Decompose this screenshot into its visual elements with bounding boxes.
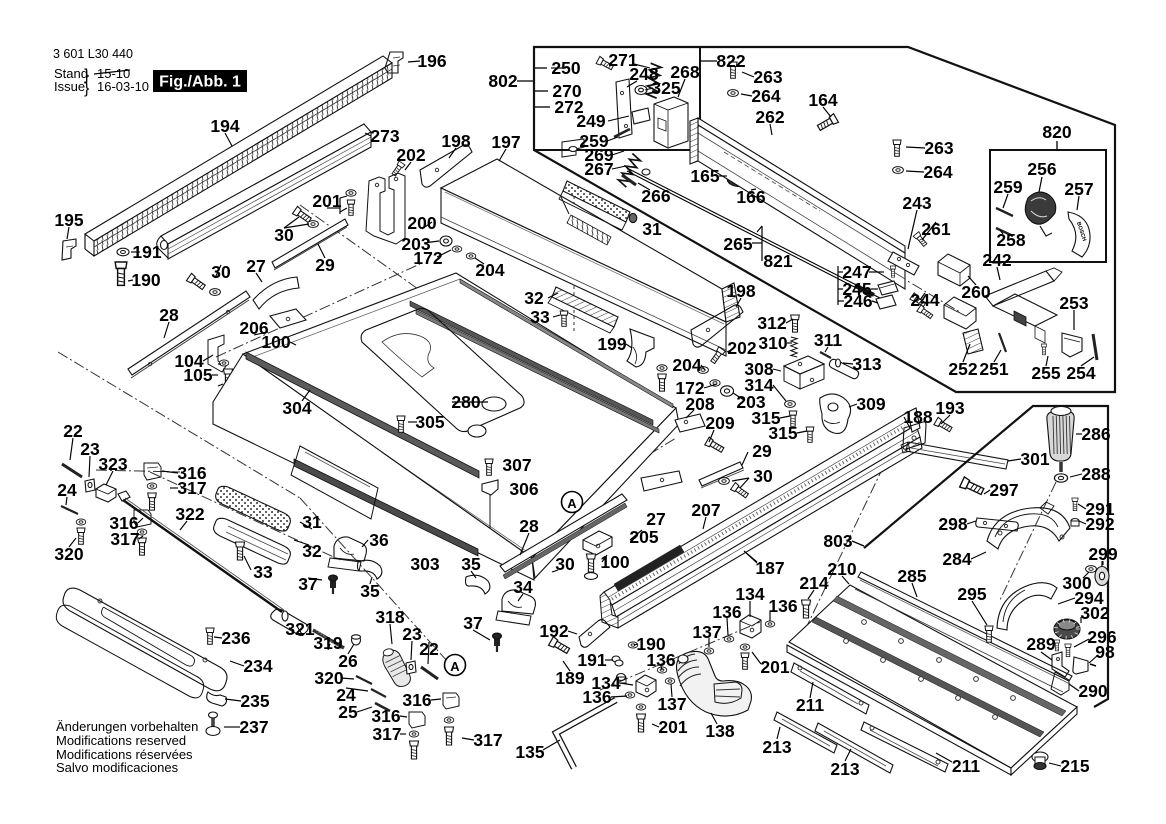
svg-text:105: 105 (183, 365, 212, 385)
svg-text:203: 203 (736, 392, 765, 412)
svg-text:189: 189 (555, 668, 584, 688)
svg-text:285: 285 (897, 566, 926, 586)
svg-text:A: A (567, 496, 577, 511)
svg-text:214: 214 (799, 573, 828, 593)
svg-text:32: 32 (302, 541, 322, 561)
svg-text:315: 315 (768, 423, 797, 443)
svg-text:298: 298 (938, 514, 967, 534)
svg-text:201: 201 (312, 191, 341, 211)
svg-text:254: 254 (1066, 363, 1095, 383)
svg-text:292: 292 (1085, 514, 1114, 534)
svg-text:205: 205 (629, 527, 658, 547)
svg-text:166: 166 (736, 187, 765, 207)
svg-text:201: 201 (658, 717, 687, 737)
svg-text:235: 235 (240, 691, 269, 711)
svg-text:29: 29 (752, 441, 772, 461)
svg-text:213: 213 (830, 759, 859, 779)
svg-text:250: 250 (551, 58, 580, 78)
svg-text:820: 820 (1042, 122, 1071, 142)
svg-text:Änderungen vorbehalten: Änderungen vorbehalten (56, 719, 198, 734)
svg-text:317: 317 (110, 529, 139, 549)
svg-text:191: 191 (132, 242, 161, 262)
svg-text:190: 190 (131, 270, 160, 290)
svg-text:265: 265 (723, 234, 752, 254)
svg-text:317: 317 (372, 724, 401, 744)
svg-text:33: 33 (253, 562, 273, 582)
svg-text:208: 208 (685, 394, 714, 414)
svg-text:187: 187 (755, 558, 784, 578)
svg-text:}: } (84, 80, 90, 97)
svg-text:164: 164 (808, 90, 837, 110)
svg-text:100: 100 (261, 332, 290, 352)
svg-text:319: 319 (313, 633, 342, 653)
svg-text:36: 36 (369, 530, 389, 550)
svg-text:37: 37 (463, 613, 482, 633)
svg-text:198: 198 (726, 281, 755, 301)
svg-text:313: 313 (852, 354, 881, 374)
svg-text:325: 325 (651, 78, 680, 98)
svg-text:35: 35 (360, 581, 380, 601)
svg-text:251: 251 (979, 359, 1008, 379)
svg-text:204: 204 (475, 260, 504, 280)
svg-text:301: 301 (1020, 449, 1049, 469)
svg-text:135: 135 (515, 742, 544, 762)
svg-text:28: 28 (159, 305, 179, 325)
svg-text:30: 30 (211, 262, 231, 282)
svg-text:320: 320 (54, 544, 83, 564)
svg-text:22: 22 (419, 639, 439, 659)
svg-text:172: 172 (413, 248, 442, 268)
svg-text:211: 211 (952, 756, 980, 776)
svg-text:316: 316 (371, 706, 400, 726)
svg-text:267: 267 (584, 159, 613, 179)
svg-text:249: 249 (576, 111, 605, 131)
svg-text:264: 264 (751, 86, 780, 106)
svg-text:37: 37 (298, 574, 317, 594)
svg-text:196: 196 (417, 51, 446, 71)
svg-text:305: 305 (415, 412, 444, 432)
svg-text:209: 209 (705, 413, 734, 433)
svg-text:204: 204 (672, 355, 701, 375)
svg-text:23: 23 (80, 439, 100, 459)
svg-text:136: 136 (646, 650, 675, 670)
svg-text:295: 295 (957, 584, 986, 604)
svg-text:321: 321 (285, 619, 314, 639)
svg-text:304: 304 (282, 398, 311, 418)
svg-text:98: 98 (1095, 642, 1115, 662)
svg-text:27: 27 (246, 256, 265, 276)
svg-text:802: 802 (488, 71, 517, 91)
svg-text:259: 259 (993, 177, 1022, 197)
svg-text:297: 297 (989, 480, 1018, 500)
svg-text:307: 307 (502, 455, 531, 475)
svg-text:32: 32 (524, 288, 544, 308)
svg-text:821: 821 (763, 251, 792, 271)
svg-text:193: 193 (935, 398, 964, 418)
svg-text:194: 194 (210, 116, 239, 136)
svg-text:197: 197 (491, 132, 520, 152)
svg-text:284: 284 (942, 549, 971, 569)
svg-text:260: 260 (961, 282, 990, 302)
svg-text:236: 236 (221, 628, 250, 648)
svg-text:310: 310 (758, 333, 787, 353)
svg-text:322: 322 (175, 504, 204, 524)
svg-text:211: 211 (796, 695, 824, 715)
svg-text:317: 317 (177, 478, 206, 498)
svg-text:27: 27 (646, 509, 665, 529)
svg-text:202: 202 (396, 145, 425, 165)
svg-text:253: 253 (1059, 293, 1088, 313)
svg-text:311: 311 (814, 330, 842, 350)
svg-text:29: 29 (315, 255, 335, 275)
svg-text:25: 25 (338, 702, 358, 722)
svg-text:Salvo modificaciones: Salvo modificaciones (56, 760, 179, 775)
svg-text:246: 246 (843, 291, 872, 311)
svg-text:242: 242 (982, 250, 1011, 270)
svg-text:136: 136 (712, 602, 741, 622)
svg-text:822: 822 (716, 51, 745, 71)
svg-text:30: 30 (753, 466, 773, 486)
svg-text:A: A (450, 659, 460, 674)
svg-text:306: 306 (509, 479, 538, 499)
svg-text:803: 803 (823, 531, 852, 551)
svg-text:302: 302 (1080, 603, 1109, 623)
svg-text:262: 262 (755, 107, 784, 127)
svg-text:34: 34 (513, 577, 533, 597)
svg-text:33: 33 (530, 307, 550, 327)
svg-text:280: 280 (451, 392, 480, 412)
svg-text:30: 30 (555, 554, 575, 574)
svg-text:137: 137 (692, 622, 721, 642)
svg-text:134: 134 (735, 584, 764, 604)
svg-text:24: 24 (57, 480, 77, 500)
svg-text:290: 290 (1078, 681, 1107, 701)
svg-text:264: 264 (923, 162, 952, 182)
svg-text:256: 256 (1027, 159, 1056, 179)
svg-text:286: 286 (1081, 424, 1110, 444)
svg-text:165: 165 (690, 166, 719, 186)
svg-text:299: 299 (1088, 544, 1117, 564)
svg-text:136: 136 (768, 596, 797, 616)
svg-text:318: 318 (375, 607, 404, 627)
svg-text:263: 263 (924, 138, 953, 158)
svg-text:199: 199 (597, 334, 626, 354)
svg-text:257: 257 (1064, 179, 1093, 199)
svg-text:234: 234 (243, 656, 272, 676)
svg-text:192: 192 (539, 621, 568, 641)
svg-text:289: 289 (1026, 634, 1055, 654)
svg-text:258: 258 (996, 230, 1025, 250)
svg-text:317: 317 (473, 730, 502, 750)
svg-text:100: 100 (600, 552, 629, 572)
svg-text:30: 30 (274, 225, 294, 245)
svg-text:138: 138 (705, 721, 734, 741)
svg-text:22: 22 (63, 421, 83, 441)
svg-text:252: 252 (948, 359, 977, 379)
svg-text:237: 237 (239, 717, 268, 737)
svg-text:207: 207 (691, 500, 720, 520)
svg-text:200: 200 (407, 213, 436, 233)
svg-text:244: 244 (910, 290, 939, 310)
svg-text:263: 263 (753, 67, 782, 87)
svg-text:198: 198 (441, 131, 470, 151)
svg-text:31: 31 (642, 219, 662, 239)
svg-text:261: 261 (921, 219, 950, 239)
svg-text:28: 28 (519, 516, 539, 536)
svg-text:3 601 L30 440: 3 601 L30 440 (53, 47, 133, 61)
svg-text:323: 323 (98, 454, 127, 474)
svg-text:BOSCH: BOSCH (1075, 221, 1087, 242)
svg-text:316: 316 (402, 690, 431, 710)
svg-text:188: 188 (903, 407, 932, 427)
svg-text:255: 255 (1031, 363, 1060, 383)
svg-text:137: 137 (657, 694, 686, 714)
svg-text:31: 31 (302, 512, 322, 532)
svg-text:Issue: Issue (54, 79, 85, 94)
svg-text:273: 273 (370, 126, 399, 146)
svg-text:Modifications reserved: Modifications reserved (56, 733, 186, 748)
svg-text:191: 191 (577, 650, 606, 670)
svg-text:201: 201 (760, 657, 789, 677)
svg-text:213: 213 (762, 737, 791, 757)
svg-text:Fig./Abb. 1: Fig./Abb. 1 (159, 74, 241, 91)
svg-text:16-03-10: 16-03-10 (97, 79, 149, 94)
svg-text:312: 312 (757, 313, 786, 333)
svg-text:210: 210 (827, 559, 856, 579)
svg-text:309: 309 (856, 394, 885, 414)
svg-text:303: 303 (410, 554, 439, 574)
svg-text:288: 288 (1081, 464, 1110, 484)
svg-text:136: 136 (582, 687, 611, 707)
svg-text:202: 202 (727, 338, 756, 358)
svg-text:266: 266 (641, 186, 670, 206)
svg-text:195: 195 (54, 210, 83, 230)
svg-text:35: 35 (461, 554, 481, 574)
svg-text:243: 243 (902, 193, 931, 213)
svg-text:215: 215 (1060, 756, 1089, 776)
